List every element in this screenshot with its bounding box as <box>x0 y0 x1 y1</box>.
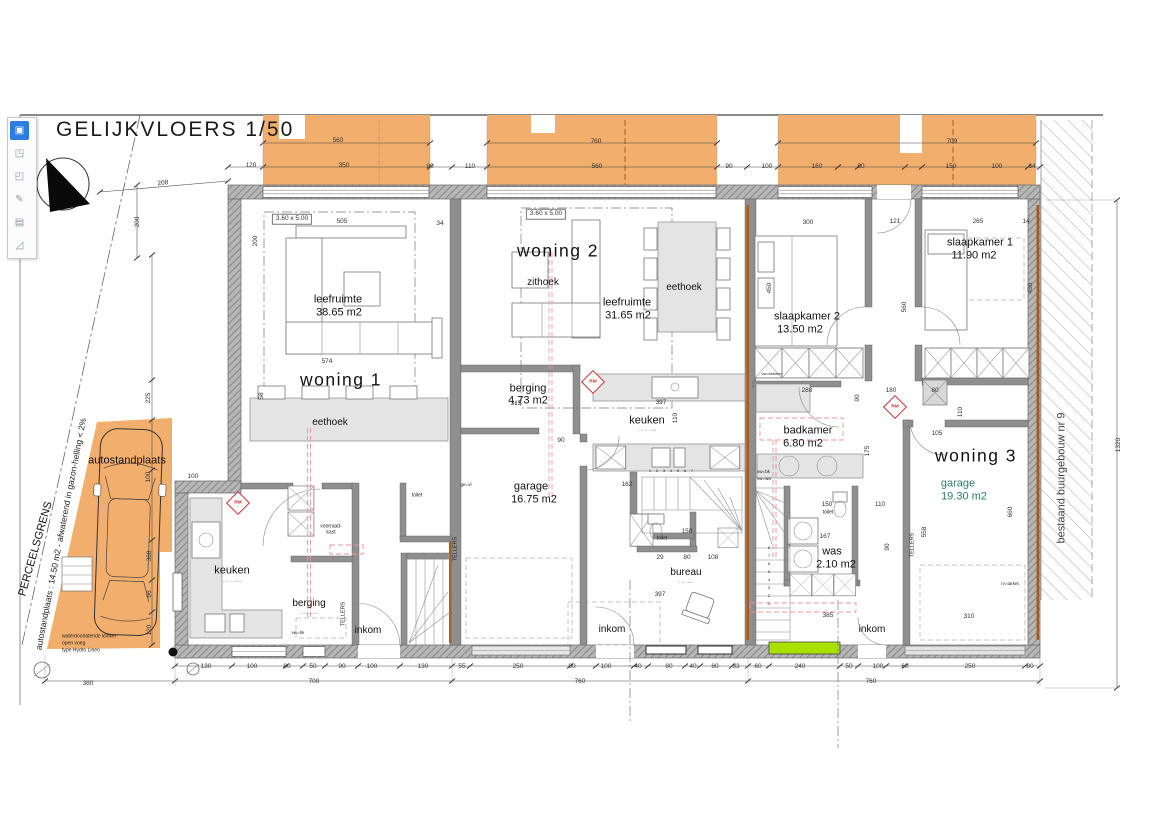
furniture-woning-2 <box>512 220 745 624</box>
parking-zone <box>47 418 172 649</box>
select-tool-icon[interactable]: ▣ <box>10 121 29 140</box>
front-windows <box>263 185 1018 199</box>
notes-tool-icon[interactable]: ▤ <box>10 213 29 232</box>
plan-title: GELIJKVLOERS 1/50 <box>56 118 294 142</box>
stairs <box>407 477 790 645</box>
north-arrow-icon <box>37 158 90 212</box>
furniture-woning-3 <box>755 230 1029 596</box>
terrace-zones <box>263 115 1036 186</box>
pen-tool-icon[interactable]: ✎ <box>10 190 29 209</box>
expand-tool-icon[interactable]: ◰ <box>10 167 29 186</box>
crop-tool-icon[interactable]: ◳ <box>10 144 29 163</box>
neighbor-building-hatch <box>1041 120 1093 600</box>
paver-legend-patch <box>62 557 92 591</box>
drawing-sheet: ▣ ◳ ◰ ✎ ▤ ◿ GELIJKVLOERS 1/50 <box>0 0 1169 826</box>
measure-tool-icon[interactable]: ◿ <box>10 236 29 255</box>
green-garage-door <box>769 642 840 654</box>
annotation-toolbar: ▣ ◳ ◰ ✎ ▤ ◿ <box>7 117 37 259</box>
survey-markers <box>34 648 199 679</box>
